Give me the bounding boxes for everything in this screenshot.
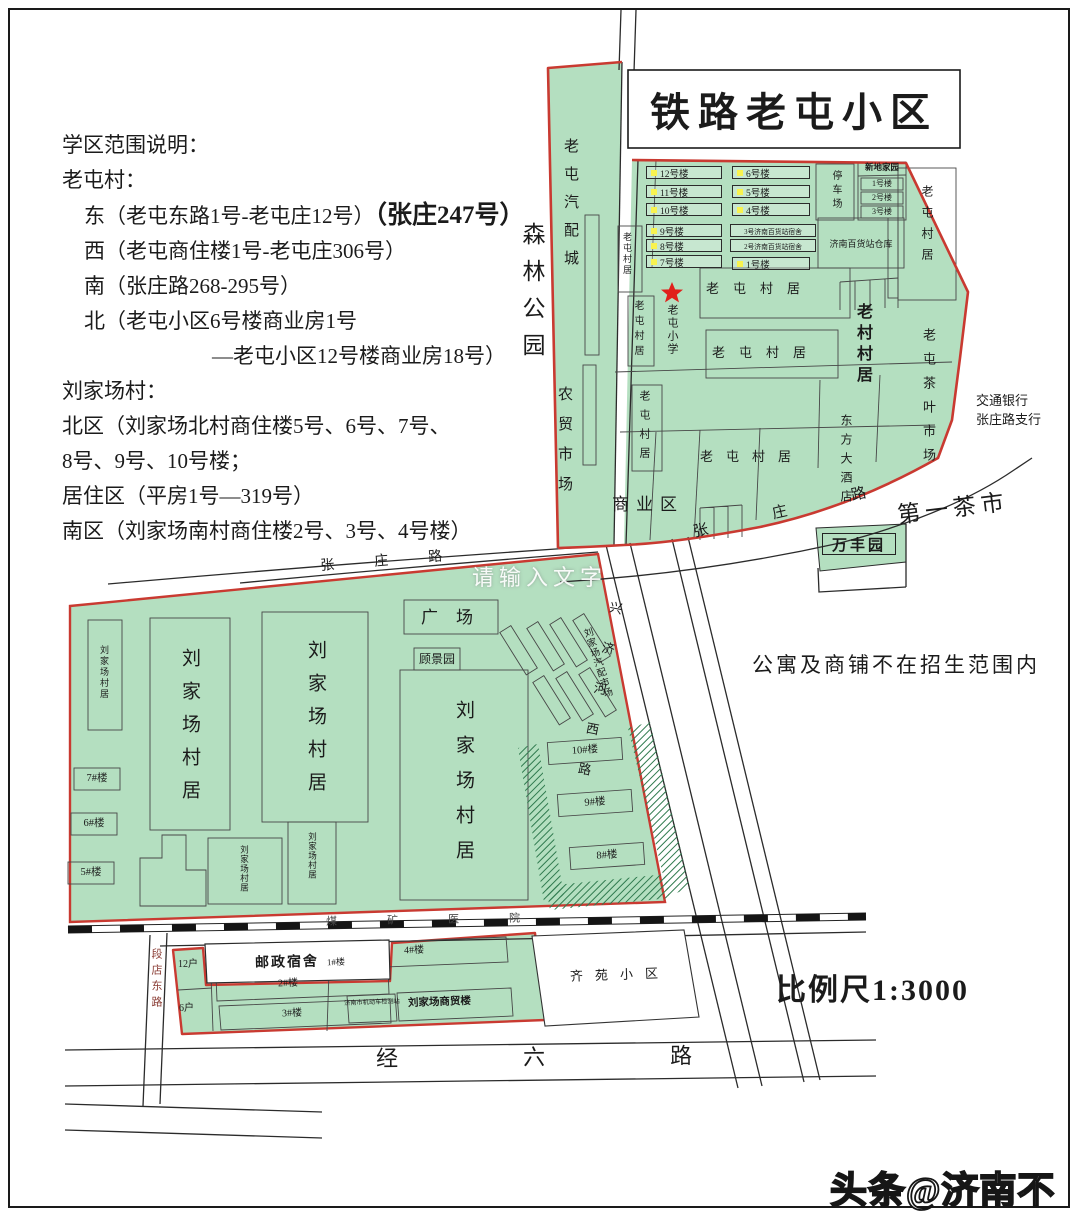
east-line-emphasis: （张庄247号）	[375, 202, 525, 229]
xindi-row-label: 1号楼	[861, 180, 903, 188]
tea-market-label: 老屯茶叶市场	[922, 328, 935, 472]
residential-line: 居住区（平房1号—319号）	[62, 479, 525, 514]
building-4-label: 4#楼	[404, 946, 424, 957]
building-row: 12号楼	[646, 166, 722, 179]
school-district-map-page: 铁路老屯小区 学区范围说明： 老屯村： 东（老屯东路1号-老屯庄12号）（张庄2…	[0, 0, 1080, 1220]
postal-dorm-label: 邮政宿舍 1#楼	[212, 945, 389, 982]
wanfengyuan-label: 万丰园	[822, 533, 896, 555]
building-dot-icon	[651, 228, 657, 234]
bank-label-line2: 张庄路支行	[976, 413, 1041, 426]
auto-parts-city-label: 老屯汽配城	[562, 138, 577, 278]
school-label: 老屯小学	[666, 304, 677, 356]
scale-label: 比例尺1:3000	[776, 976, 969, 1006]
center-watermark: 请输入文字	[472, 560, 607, 592]
building-3-label: 3#楼	[282, 1009, 302, 1020]
duandian-road-label: 段店东路	[150, 948, 161, 1012]
building-dot-icon	[651, 189, 657, 195]
liujiachang-village-label: 刘家场村居	[240, 845, 249, 893]
laotun-village-label: 老屯村居	[632, 300, 642, 360]
xindi-row-label: 3号楼	[861, 208, 903, 216]
building-row: 4号楼	[732, 203, 810, 216]
gujingyuan-label: 顾景园	[414, 648, 460, 670]
building-dot-icon	[737, 207, 743, 213]
north-line-1: 北（老屯小区6号楼商业房1号	[62, 304, 525, 339]
building-dot-icon	[737, 170, 743, 176]
laotun-village-label: 老屯村居	[700, 450, 804, 463]
south-area-line: 南区（刘家场南村商住楼2号、3号、4号楼）	[62, 514, 525, 549]
liujiachang-heading: 刘家场村：	[62, 374, 525, 409]
north-line-2: —老屯小区12号楼商业房18号）	[62, 339, 525, 374]
south-line: 南（张庄路268-295号）	[62, 269, 525, 304]
liujiachang-village-label: 刘家场村居	[306, 640, 325, 805]
building-dot-icon	[651, 170, 657, 176]
old-village-label: 老村村居	[854, 303, 870, 387]
xindi-row-label: 2号楼	[861, 194, 903, 202]
dorm-building-row: 3号济南百货站宿舍	[730, 224, 816, 237]
building-7-label: 7#楼	[74, 768, 120, 790]
north-area-line-2: 8号、9号、10号楼；	[62, 444, 525, 479]
building-dot-icon	[651, 207, 657, 213]
corner-watermark: 头条@济南不凡事	[830, 1160, 1080, 1220]
building-row: 8号楼	[646, 239, 722, 252]
district-description: 学区范围说明： 老屯村： 东（老屯东路1号-老屯庄12号）（张庄247号） 西（…	[62, 128, 525, 549]
building-dot-icon	[737, 189, 743, 195]
laotun-heading: 老屯村：	[62, 163, 525, 198]
building-row: 11号楼	[646, 185, 722, 198]
laotun-village-label: 老屯村居	[638, 390, 649, 466]
liujiachang-village-label: 刘家场村居	[454, 700, 473, 875]
building-dot-icon	[651, 259, 657, 265]
jingliu-road-label: 经六路	[376, 1044, 817, 1070]
forest-park-label: 森林公园	[520, 222, 543, 370]
units-6-label: 6户	[179, 1004, 194, 1014]
qiyuan-community-label: 齐苑小区	[570, 966, 670, 982]
building-row: 7号楼	[646, 255, 722, 268]
laotun-village-label: 老屯村居	[706, 282, 814, 295]
bank-label-line1: 交通银行	[976, 394, 1028, 407]
commercial-area-label: 商业区	[612, 496, 684, 513]
warehouse-label: 济南百货站仓库	[818, 240, 904, 249]
exclusion-note: 公寓及商铺不在招生范围内	[752, 655, 1040, 676]
liujiachang-village-label: 刘家场村居	[99, 645, 108, 700]
building-5-label: 5#楼	[68, 862, 114, 884]
building-2-label: 2#楼	[278, 979, 298, 990]
dorm-building-row: 2号济南百货站宿舍	[730, 239, 816, 252]
laotun-village-label: 老屯村居	[712, 346, 820, 359]
building-dot-icon	[737, 261, 743, 267]
building-row: 10号楼	[646, 203, 722, 216]
building-row: 6号楼	[732, 166, 810, 179]
description-heading: 学区范围说明：	[62, 128, 525, 163]
laotun-village-label: 老屯村居	[921, 185, 933, 269]
building-row: 5号楼	[732, 185, 810, 198]
building-6-label: 6#楼	[71, 813, 117, 835]
liujiachang-village-label: 刘家场村居	[308, 832, 317, 880]
liujiachang-village-label: 刘家场村居	[180, 648, 199, 813]
east-line: 东（老屯东路1号-老屯庄12号）（张庄247号）	[62, 198, 525, 234]
trade-building-label: 刘家场商贸楼	[408, 997, 471, 1010]
farmers-market-label: 农贸市场	[556, 386, 571, 506]
xindi-name-label: 新地家园	[858, 163, 906, 172]
west-line: 西（老屯商住楼1号-老屯庄306号）	[62, 234, 525, 269]
postal-building-no: 1#楼	[327, 957, 345, 966]
parking-label: 停车场	[830, 170, 840, 212]
building-dot-icon	[651, 243, 657, 249]
laotun-village-label: 老屯村居	[622, 232, 631, 276]
plaza-label: 广场	[404, 600, 498, 634]
building-row: 1号楼	[732, 257, 810, 270]
units-12-label: 12户	[178, 960, 198, 970]
north-area-line-1: 北区（刘家场北村商住楼5号、6号、7号、	[62, 409, 525, 444]
map-title: 铁路老屯小区	[628, 70, 960, 148]
building-row: 9号楼	[646, 224, 722, 237]
